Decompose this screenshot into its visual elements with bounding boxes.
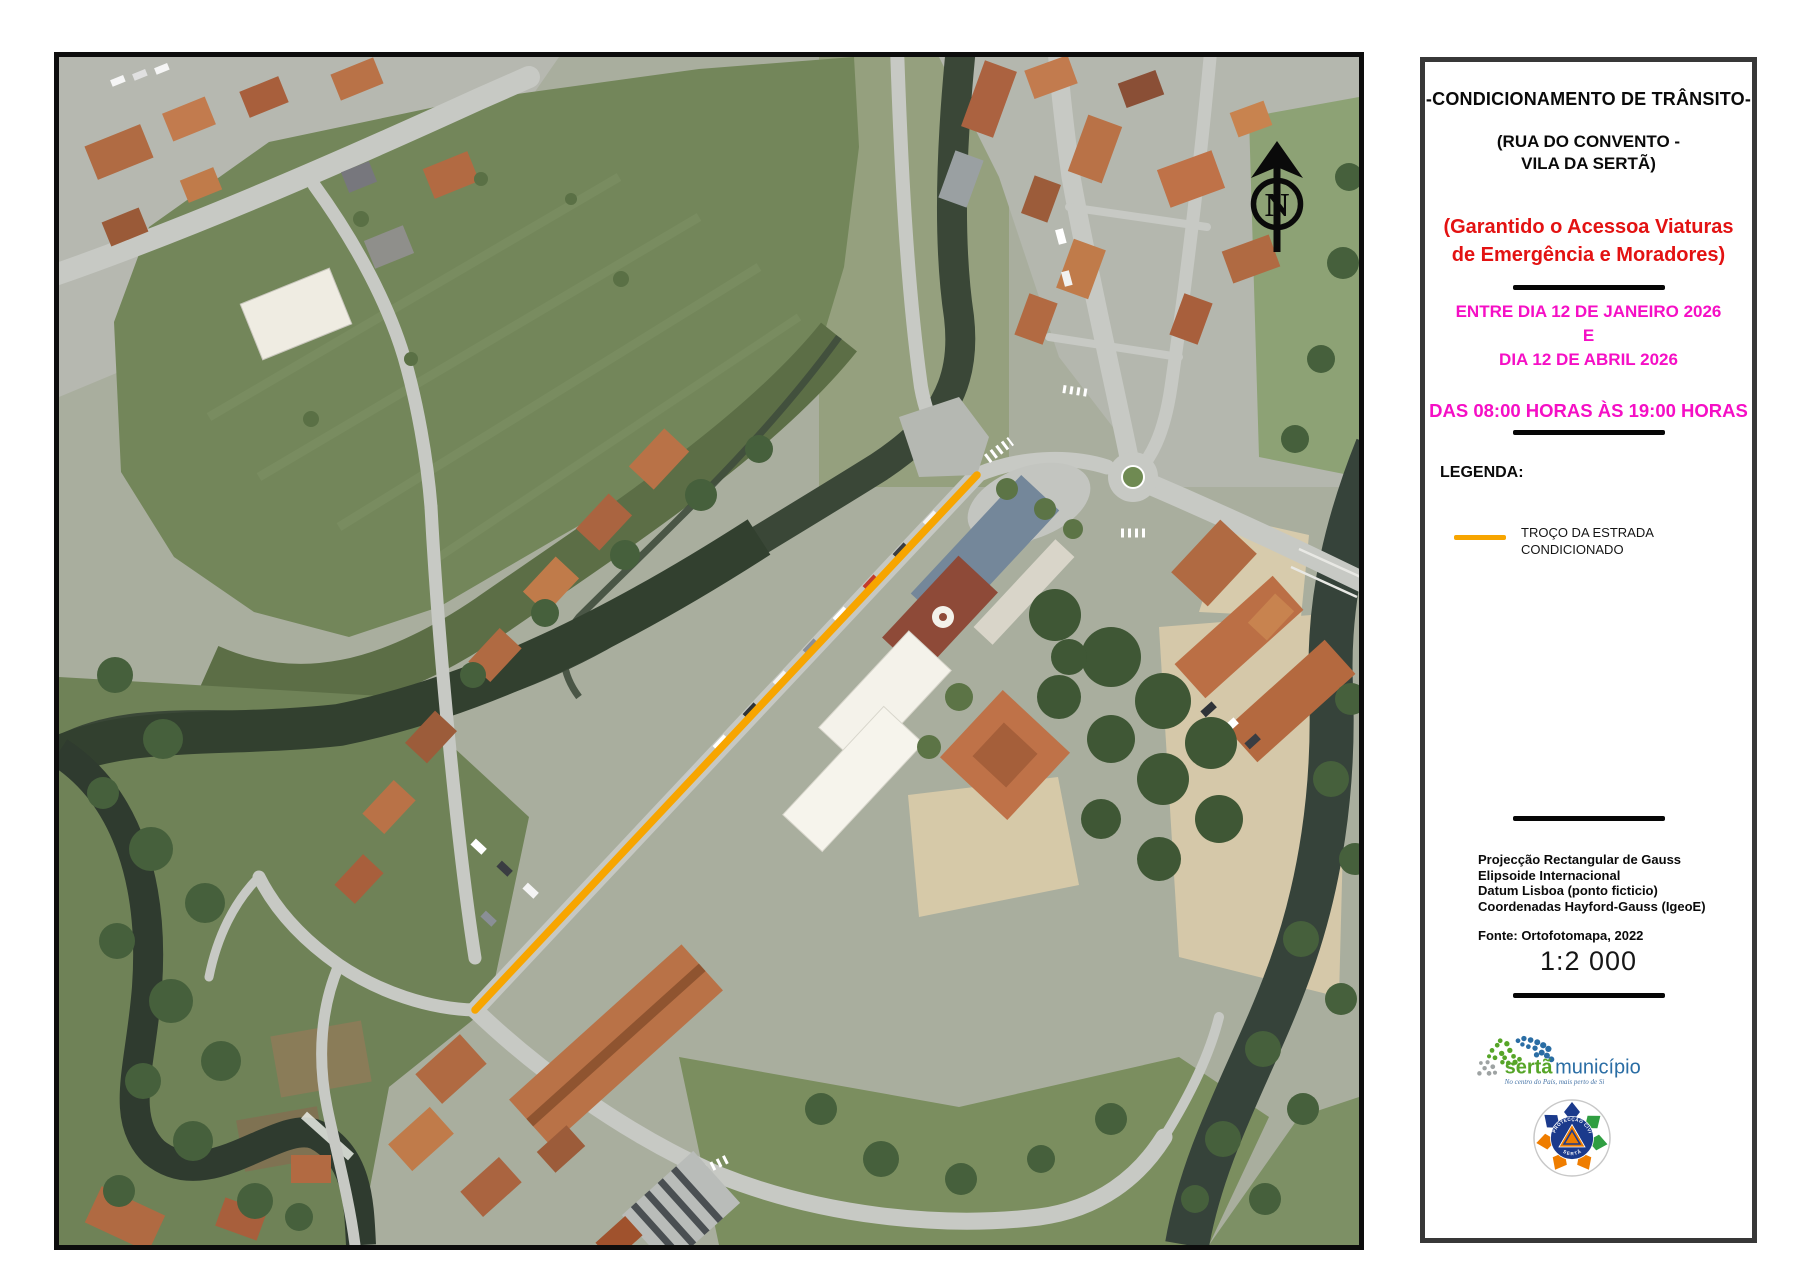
map-area: N: [54, 52, 1364, 1250]
info-panel: -CONDICIONAMENTO DE TRÂNSITO- (RUA DO CO…: [1420, 57, 1757, 1243]
serta-municipio-logo: sertã município No centro do País, mais …: [1472, 1034, 1650, 1092]
period-line2: E: [1425, 324, 1752, 348]
civil-protection-logo: PROTECÇÃO CIVIL SERTÃ: [1532, 1098, 1612, 1178]
source-note: Fonte: Ortofotomapa, 2022: [1478, 928, 1643, 943]
divider: [1513, 285, 1665, 290]
legend-label-line2: CONDICIONADO: [1521, 541, 1654, 558]
legend-heading: LEGENDA:: [1440, 464, 1524, 482]
location-line2: VILA DA SERTÃ): [1425, 153, 1752, 175]
north-label: N: [1265, 187, 1290, 224]
projection-line: Projecção Rectangular de Gauss: [1478, 852, 1706, 868]
divider: [1513, 430, 1665, 435]
legend-route-label: TROÇO DA ESTRADA CONDICIONADO: [1521, 524, 1654, 558]
legend-label-line1: TROÇO DA ESTRADA: [1521, 524, 1654, 541]
projection-line: Datum Lisboa (ponto ficticio): [1478, 883, 1706, 899]
municipality-tagline: No centro do País, mais perto de Si: [1504, 1078, 1605, 1086]
period-line1: ENTRE DIA 12 DE JANEIRO 2026: [1425, 300, 1752, 324]
divider: [1513, 993, 1665, 998]
legend-route-swatch: [1454, 535, 1506, 540]
poster-title: -CONDICIONAMENTO DE TRÂNSITO-: [1425, 89, 1752, 110]
map-scale: 1:2 000: [1425, 946, 1752, 977]
access-notice-line1: (Garantido o Acessoa Viaturas: [1425, 213, 1752, 241]
serta-wordmark: sertã: [1505, 1056, 1554, 1078]
date-period: ENTRE DIA 12 DE JANEIRO 2026 E DIA 12 DE…: [1425, 300, 1752, 372]
access-notice-line2: de Emergência e Moradores): [1425, 241, 1752, 269]
projection-info: Projecção Rectangular de Gauss Elipsoide…: [1478, 852, 1706, 914]
access-notice: (Garantido o Acessoa Viaturas de Emergên…: [1425, 213, 1752, 269]
period-line3: DIA 12 DE ABRIL 2026: [1425, 348, 1752, 372]
traffic-restriction-map-poster: N -CONDICIONAMENTO DE TRÂNSITO- (RUA DO …: [0, 0, 1800, 1273]
location-line1: (RUA DO CONVENTO -: [1425, 131, 1752, 153]
projection-line: Elipsoide Internacional: [1478, 868, 1706, 884]
roundabout: [1108, 452, 1158, 502]
terrain-layer: [59, 57, 1359, 1245]
aerial-photo: N: [59, 57, 1359, 1245]
divider: [1513, 816, 1665, 821]
projection-line: Coordenadas Hayford-Gauss (IgeoE): [1478, 899, 1706, 915]
location-subtitle: (RUA DO CONVENTO - VILA DA SERTÃ): [1425, 131, 1752, 175]
municipio-wordmark: município: [1555, 1056, 1641, 1078]
daily-hours: DAS 08:00 HORAS ÀS 19:00 HORAS: [1425, 400, 1752, 422]
